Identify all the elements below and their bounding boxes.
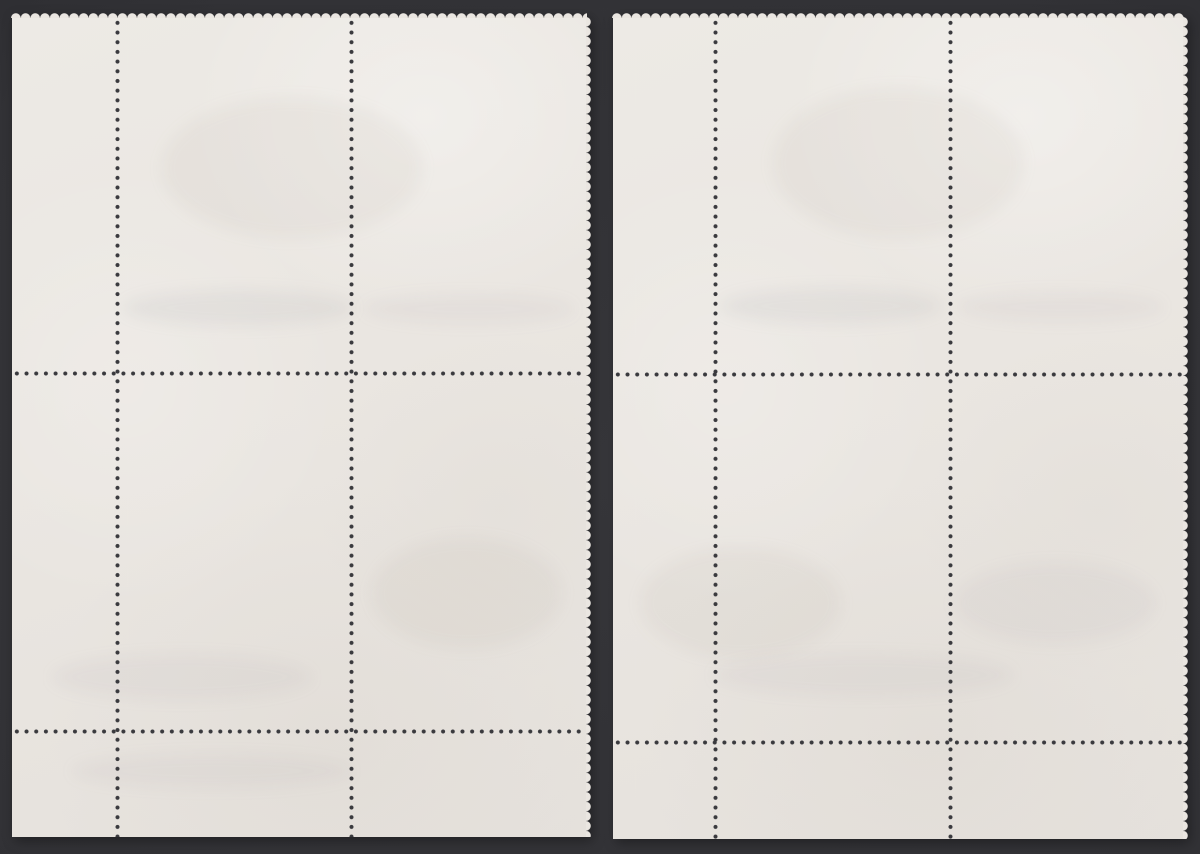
paper-texture (613, 18, 1183, 839)
print-showthrough-ghost (162, 98, 422, 238)
stamp-block-right (613, 18, 1183, 839)
print-showthrough-ghost (955, 563, 1155, 643)
stamp-block-left (12, 18, 586, 837)
paper-texture (12, 18, 586, 837)
print-showthrough-ghost (721, 288, 941, 324)
print-showthrough-ghost (52, 654, 312, 700)
print-showthrough-ghost (124, 290, 354, 326)
print-showthrough-ghost (713, 654, 1013, 696)
print-showthrough-ghost (364, 294, 574, 324)
print-showthrough-ghost (372, 538, 562, 648)
perforated-edge-right (586, 17, 591, 837)
print-showthrough-ghost (958, 292, 1163, 322)
perforated-edge-right (1183, 17, 1188, 839)
print-showthrough-ghost (72, 754, 352, 788)
photo-surface (0, 0, 1200, 854)
print-showthrough-ghost (641, 548, 841, 658)
print-showthrough-ghost (773, 88, 1023, 238)
